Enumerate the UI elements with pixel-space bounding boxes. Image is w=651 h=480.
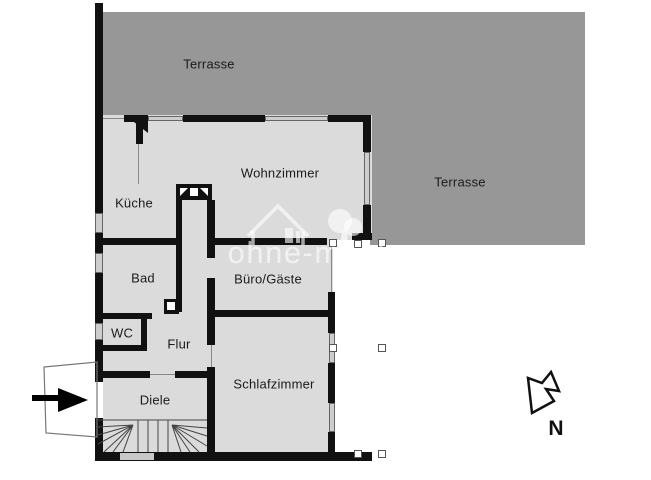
door-swing-mark: [134, 122, 148, 133]
stairs: [98, 420, 207, 452]
floor-plan: Terrasse Terrasse Wohnzimmer Küche Bad B…: [0, 0, 651, 480]
north-arrow-icon: [528, 372, 559, 413]
watermark-text: ohne-makler: [228, 235, 417, 271]
chimney-hatch: [180, 188, 208, 196]
entrance-arrow-icon: [32, 388, 88, 412]
